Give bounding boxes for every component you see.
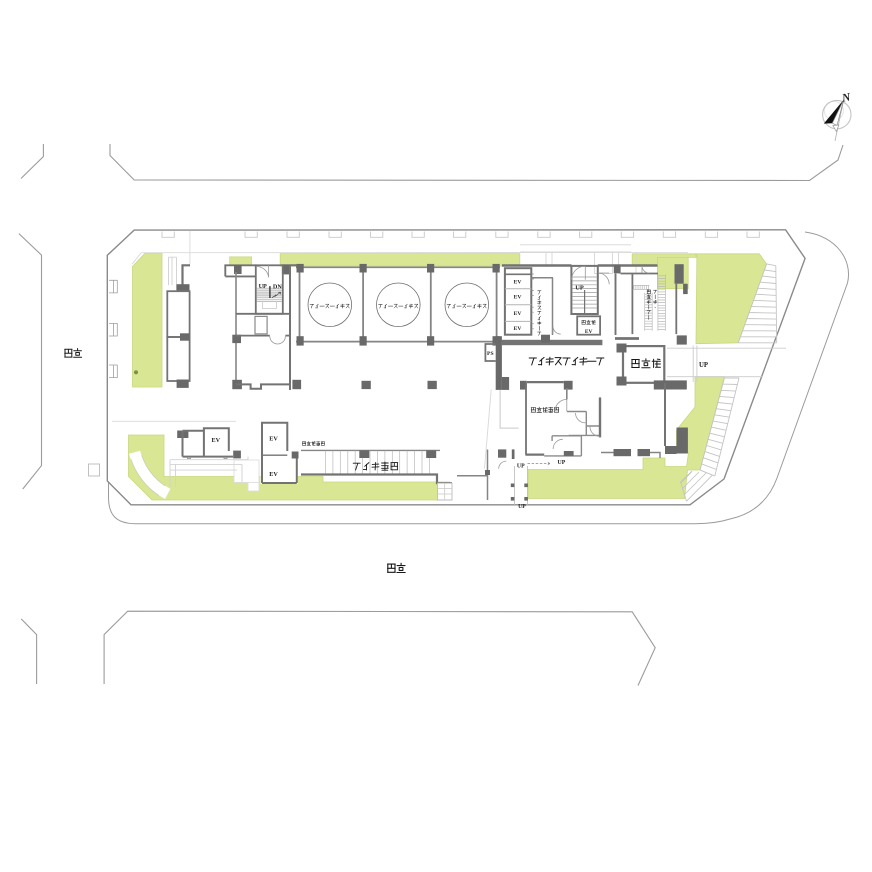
- svg-text:UP: UP: [575, 285, 584, 292]
- svg-text:UP: UP: [517, 463, 525, 469]
- svg-text:UP: UP: [558, 460, 566, 466]
- svg-text:EV: EV: [585, 329, 593, 335]
- svg-text:PS: PS: [487, 351, 494, 357]
- svg-text:EV: EV: [269, 436, 278, 443]
- svg-text:EV: EV: [269, 471, 278, 478]
- svg-text:UP: UP: [699, 362, 708, 369]
- svg-text:EV: EV: [514, 326, 522, 332]
- svg-text:EV: EV: [514, 280, 522, 286]
- svg-text:UP: UP: [259, 283, 267, 290]
- svg-text:EV: EV: [211, 437, 220, 444]
- svg-text:DN: DN: [273, 284, 282, 291]
- svg-text:UP: UP: [518, 504, 526, 510]
- svg-text:EV: EV: [514, 311, 522, 317]
- svg-text:EV: EV: [514, 295, 522, 301]
